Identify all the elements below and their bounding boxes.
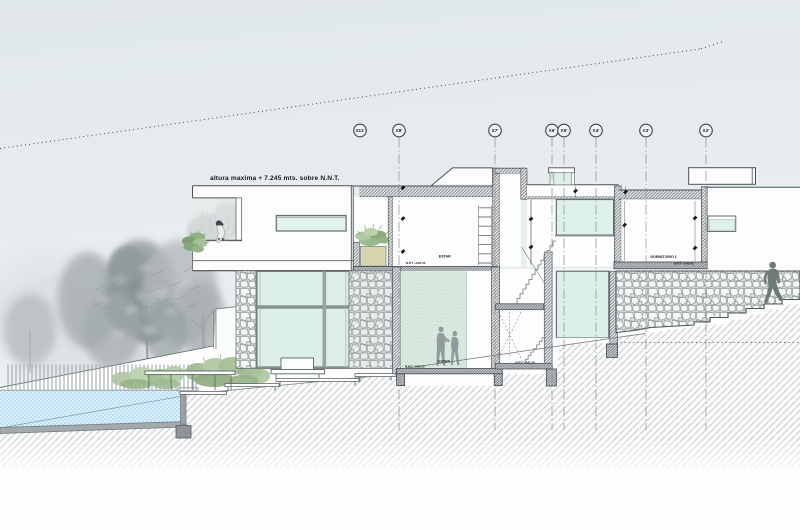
svg-text:X5': X5' — [561, 128, 568, 133]
svg-text:X3': X3' — [643, 128, 650, 133]
svg-text:ESTAR: ESTAR — [438, 359, 450, 363]
svg-text:N.P.T +248.45: N.P.T +248.45 — [674, 261, 694, 265]
svg-text:ESTAR: ESTAR — [439, 255, 451, 259]
svg-text:N.P.T +238.85: N.P.T +238.85 — [405, 365, 425, 369]
svg-text:N.P.T +242.30: N.P.T +242.30 — [515, 361, 535, 365]
svg-text:X11': X11' — [355, 128, 364, 133]
svg-text:altura maxima + 7.245 mts. sob: altura maxima + 7.245 mts. sobre N.N.T. — [210, 175, 340, 182]
svg-text:X2': X2' — [703, 128, 710, 133]
svg-text:X4': X4' — [593, 128, 600, 133]
svg-text:DORMITORIO 1: DORMITORIO 1 — [651, 255, 677, 259]
svg-text:X6': X6' — [549, 128, 556, 133]
svg-text:N.P.T +245.50: N.P.T +245.50 — [406, 261, 426, 265]
svg-text:X8': X8' — [396, 128, 403, 133]
svg-text:X7': X7' — [492, 128, 499, 133]
